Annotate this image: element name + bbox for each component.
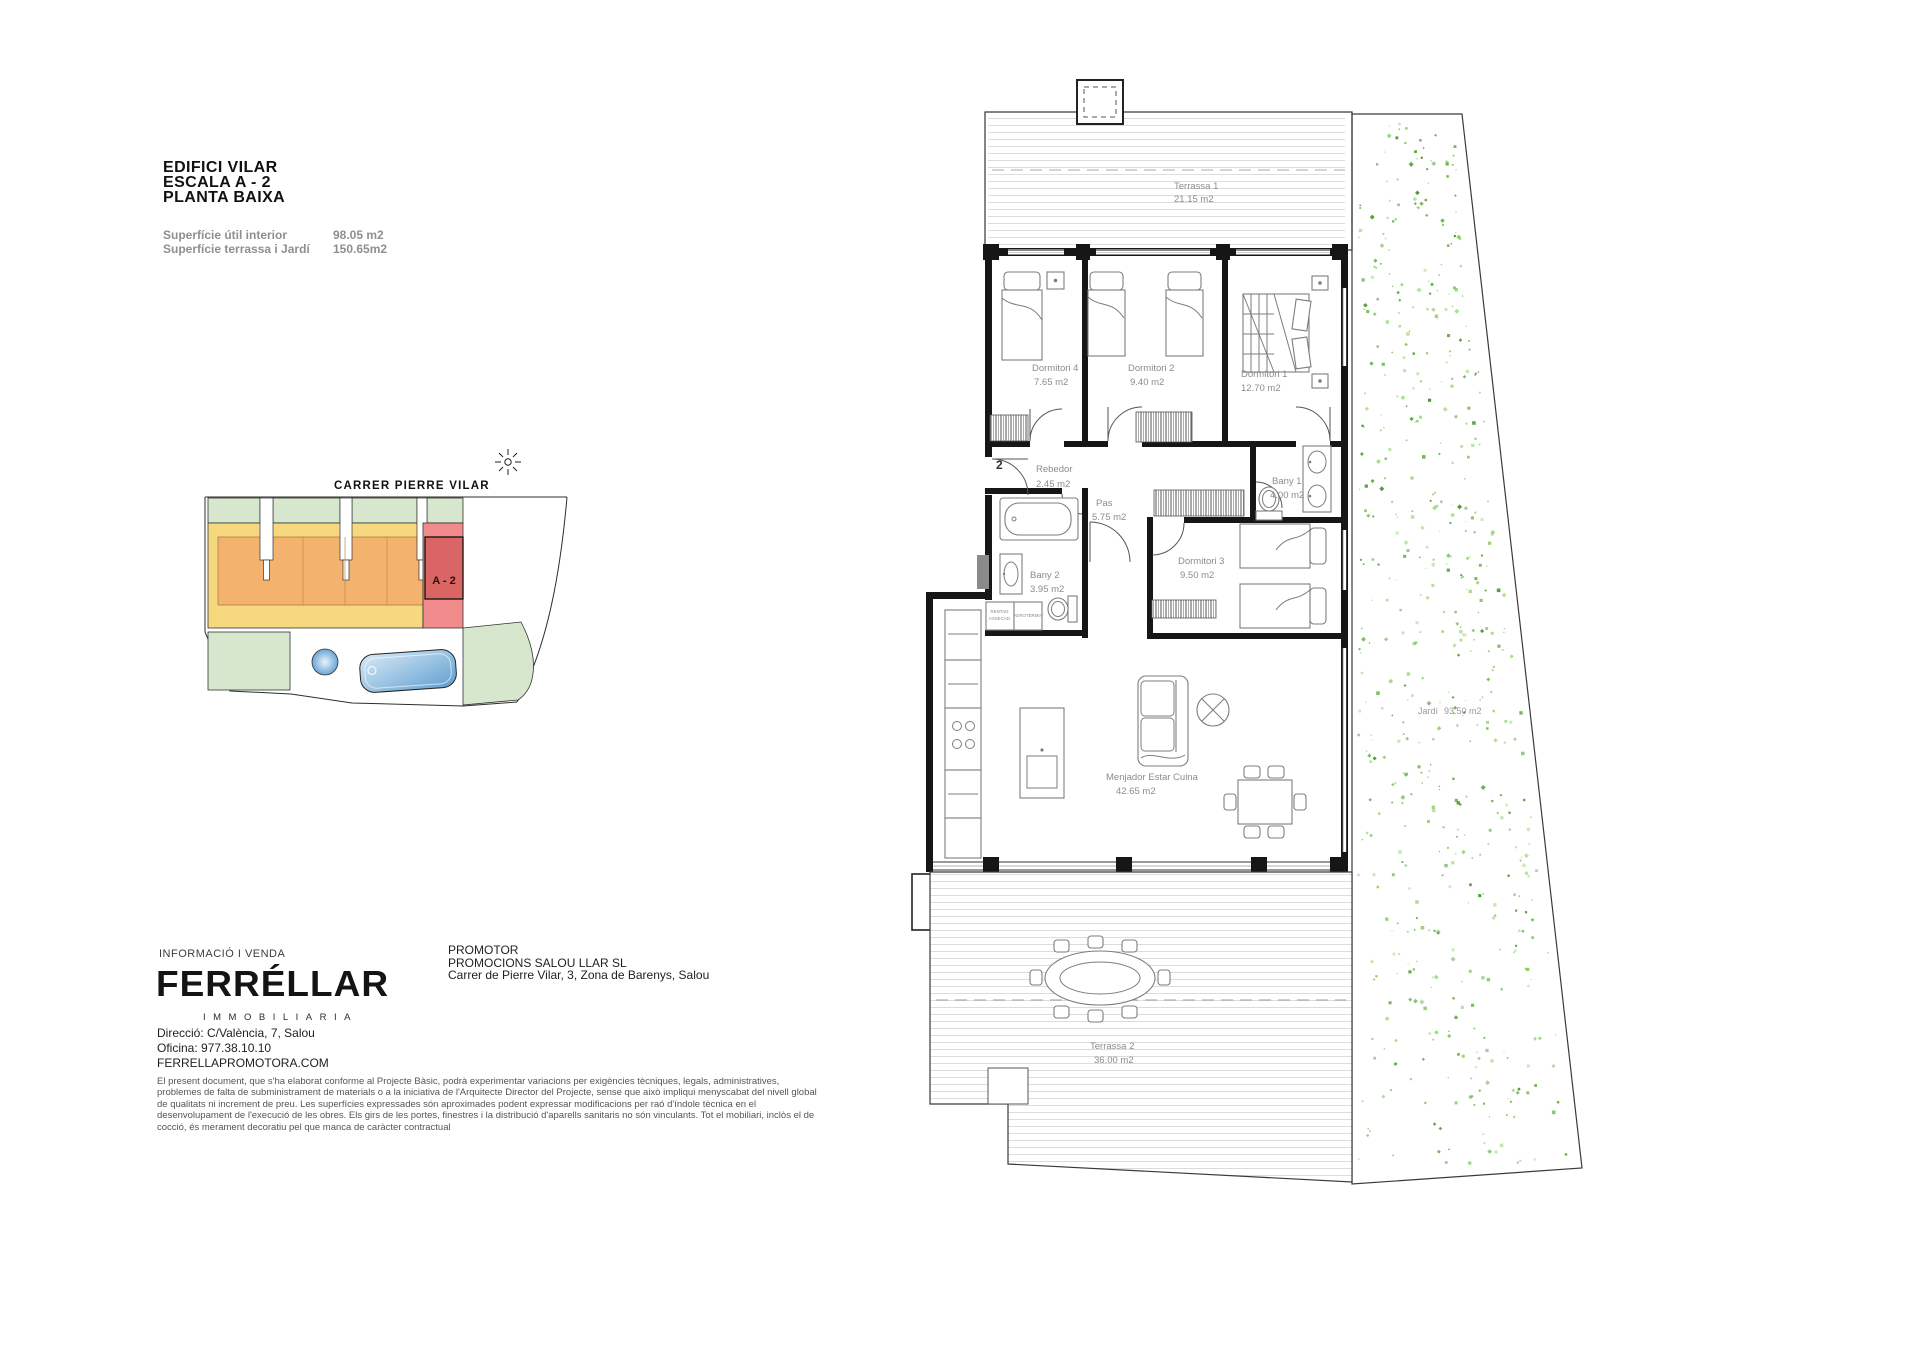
window bbox=[1008, 249, 1330, 255]
plan-drawing: CARRER PIERRE VILAR bbox=[0, 0, 1920, 1357]
site-spa bbox=[312, 649, 338, 675]
sofa bbox=[1138, 676, 1188, 766]
site-garden-strip bbox=[427, 498, 463, 523]
room-label: Dormitori 2 bbox=[1128, 363, 1174, 374]
agency-phone: Oficina: 977.38.10.10 bbox=[157, 1041, 329, 1056]
washer-label: RENTAD. bbox=[991, 609, 1010, 614]
garden-area: 93.50 m2 bbox=[1444, 706, 1482, 716]
site-unit-a2-label: A - 2 bbox=[432, 575, 455, 587]
site-garden-lower bbox=[208, 632, 290, 690]
agency-address: Direcció: C/València, 7, Salou bbox=[157, 1026, 329, 1041]
promoter-title: PROMOTOR bbox=[448, 944, 709, 957]
room-area: 3.95 m2 bbox=[1030, 584, 1064, 595]
terrace1-label: Terrassa 1 bbox=[1174, 181, 1218, 192]
room-label: Rebedor bbox=[1036, 464, 1072, 475]
nightstand bbox=[1047, 272, 1064, 289]
site-units-orange bbox=[218, 537, 423, 605]
room-area: 12.70 m2 bbox=[1241, 383, 1281, 394]
kitchen-counter bbox=[945, 610, 981, 858]
agency-website: FERRELLAPROMOTORA.COM bbox=[157, 1056, 329, 1071]
laundry-units: RENTAD. ASSECAD. AEROTÈRMIA bbox=[986, 602, 1043, 630]
terrace2-area: 36.00 m2 bbox=[1094, 1055, 1134, 1066]
street-label: CARRER PIERRE VILAR bbox=[334, 480, 490, 492]
round-table bbox=[1197, 694, 1229, 726]
promoter-block: PROMOTOR PROMOCIONS SALOU LLAR SL Carrer… bbox=[448, 944, 709, 982]
room-area: 2.45 m2 bbox=[1036, 479, 1070, 490]
bed-single bbox=[1166, 272, 1203, 356]
legal-disclaimer: El present document, que s'ha elaborat c… bbox=[157, 1076, 819, 1133]
brochure-page: EDIFICI VILAR ESCALA A - 2 PLANTA BAIXA … bbox=[0, 0, 1920, 1357]
site-garden-strip bbox=[208, 498, 260, 523]
bed-single bbox=[1002, 272, 1042, 360]
garden-label: Jardí bbox=[1418, 706, 1439, 716]
room-label: Menjador Estar Cuina bbox=[1106, 772, 1199, 783]
toilet bbox=[1068, 596, 1077, 622]
room-label: Bany 1 bbox=[1272, 476, 1302, 487]
agency-logo: FERRÉLLAR bbox=[156, 963, 389, 1004]
room-area: 42.65 m2 bbox=[1116, 786, 1156, 797]
promoter-address: Carrer de Pierre Vilar, 3, Zona de Baren… bbox=[448, 969, 709, 982]
room-label: Pas bbox=[1096, 498, 1113, 509]
heatpump-label: AEROTÈRMIA bbox=[1013, 613, 1042, 618]
terrace-step bbox=[988, 1068, 1028, 1104]
kitchen-island bbox=[1020, 708, 1064, 798]
apartment: RENTAD. ASSECAD. AEROTÈRMIA bbox=[912, 244, 1348, 930]
site-garden-right bbox=[463, 622, 533, 705]
site-garden-strip bbox=[273, 498, 340, 523]
site-pool bbox=[359, 649, 457, 694]
room-label: Dormitori 4 bbox=[1032, 363, 1078, 374]
garden: Jardí 93.50 m2 bbox=[1352, 114, 1582, 1184]
bed-double bbox=[1243, 294, 1311, 372]
terrace2-label: Terrassa 2 bbox=[1090, 1041, 1134, 1052]
info-title: INFORMACIÓ I VENDA bbox=[159, 948, 285, 960]
room-area: 4.00 m2 bbox=[1270, 490, 1304, 501]
bed-single bbox=[1240, 584, 1326, 628]
entry-number: 2 bbox=[996, 458, 1003, 472]
bed-single bbox=[1088, 272, 1125, 356]
room-area: 5.75 m2 bbox=[1092, 512, 1126, 523]
room-area: 7.65 m2 bbox=[1034, 377, 1068, 388]
site-unit-a2 bbox=[425, 537, 463, 599]
room-label: Bany 2 bbox=[1030, 570, 1060, 581]
terrace-1: Terrassa 1 21.15 m2 bbox=[985, 80, 1352, 250]
room-label: Dormitori 3 bbox=[1178, 556, 1224, 567]
agency-logo-subtitle: IMMOBILIARIA bbox=[203, 1012, 358, 1023]
room-area: 9.40 m2 bbox=[1130, 377, 1164, 388]
bed-single bbox=[1240, 524, 1326, 568]
agency-contact: Direcció: C/València, 7, Salou Oficina: … bbox=[157, 1026, 329, 1071]
room-label: Dormitori 1 bbox=[1241, 369, 1287, 380]
room-area: 9.50 m2 bbox=[1180, 570, 1214, 581]
site-garden-strip bbox=[352, 498, 417, 523]
dryer-label: ASSECAD. bbox=[989, 616, 1011, 621]
toilet bbox=[1256, 511, 1282, 520]
sun-icon bbox=[495, 449, 521, 475]
terrace-2: Terrassa 2 36.00 m2 bbox=[930, 872, 1352, 1182]
terrace1-area: 21.15 m2 bbox=[1174, 194, 1214, 205]
site-plan: CARRER PIERRE VILAR bbox=[205, 449, 567, 706]
